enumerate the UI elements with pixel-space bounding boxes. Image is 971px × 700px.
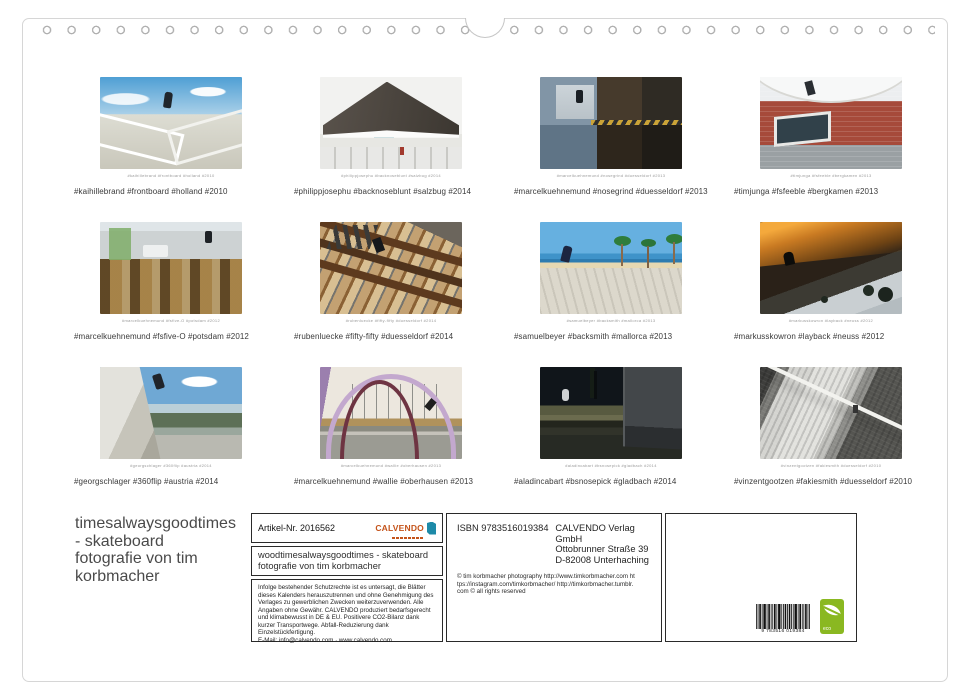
micro-caption: #kaihillebrand #frontboard #holland #201… — [100, 173, 242, 178]
photo-hashtag-caption: #georgschlager #360flip #austria #2014 — [61, 477, 281, 486]
leaf-icon — [823, 601, 841, 619]
photo-hashtag-caption: #timjunga #fsfeeble #bergkamen #2013 — [721, 187, 941, 196]
skater-figure — [853, 405, 858, 413]
calendar-thumb-cell: #kaihillebrand #frontboard #holland #201… — [61, 77, 281, 222]
photo-hashtag-caption: #samuelbeyer #backsmith #mallorca #2013 — [501, 332, 721, 341]
calendar-title-line: fotografie von tim — [75, 550, 236, 568]
publisher-city: D-82008 Unterhaching — [555, 555, 651, 566]
photo-thumbnail — [100, 77, 242, 169]
photo-thumbnail — [540, 367, 682, 459]
calendar-thumb-cell: #rubenluecke #fifty-fifty #duesseldorf #… — [281, 222, 501, 367]
photo-thumbnail — [760, 367, 902, 459]
micro-caption: #rubenluecke #fifty-fifty #duesseldorf #… — [320, 318, 462, 323]
skater-figure — [152, 373, 165, 390]
photo-thumbnail — [760, 77, 902, 169]
photo-hashtag-caption: #markusskowron #layback #neuss #2012 — [721, 332, 941, 341]
calendar-thumb-cell: #marcelkuehnemund #nosegrind #duesseldor… — [501, 77, 721, 222]
micro-caption: #marcelkuehnemund #fsfive-O #potsdam #20… — [100, 318, 242, 323]
eco-badge: eco — [820, 599, 844, 634]
contact-line: E-Mail: info@calvendo.com · www.calvendo… — [258, 637, 392, 644]
photo-thumbnail — [320, 222, 462, 314]
photo-thumbnail — [760, 222, 902, 314]
barcode-digits: 9 783516 019384 — [756, 629, 810, 634]
calendar-thumb-cell: #samuelbeyer #backsmith #mallorca #2013 … — [501, 222, 721, 367]
calendar-thumb-cell: #georgschlager #360flip #austria #2014 #… — [61, 367, 281, 512]
calendar-thumb-cell: #marcelkuehnemund #wallie #oberhausen #2… — [281, 367, 501, 512]
skater-figure — [804, 80, 815, 96]
photo-thumbnail — [540, 77, 682, 169]
isbn-number: ISBN 9783516019384 — [457, 523, 555, 565]
calendar-thumb-cell: #markusskowron #layback #neuss #2012 #ma… — [721, 222, 941, 367]
photo-hashtag-caption: #marcelkuehnemund #wallie #oberhausen #2… — [281, 477, 501, 486]
publisher-address: CALVENDO Verlag GmbH Ottobrunner Straße … — [555, 523, 651, 565]
photo-hashtag-caption: #marcelkuehnemund #nosegrind #duesseldor… — [501, 187, 721, 196]
skater-figure — [205, 231, 212, 243]
photo-thumbnail — [100, 367, 242, 459]
photo-thumbnail — [540, 222, 682, 314]
photo-hashtag-caption: #vinzentgootzen #fakiesmith #duesseldorf… — [721, 477, 941, 486]
calendar-title-line: timesalwaysgoodtimes — [75, 515, 236, 533]
skater-figure — [424, 398, 436, 411]
barcode-bars — [756, 604, 810, 629]
calvendo-wordmark: CALVENDO — [375, 523, 424, 533]
calendar-title-line: korbmacher — [75, 568, 236, 586]
calendar-thumb-cell: #philippjosephu #backnoseblunt #salzbug … — [281, 77, 501, 222]
photo-hashtag-caption: #rubenluecke #fifty-fifty #duesseldorf #… — [281, 332, 501, 341]
eco-label: eco — [823, 626, 831, 632]
micro-caption: #markusskowron #layback #neuss #2012 — [760, 318, 902, 323]
product-title: woodtimesalwaysgoodtimes - skateboard fo… — [258, 550, 428, 571]
calvendo-logo: CALVENDO — [375, 518, 436, 539]
product-title-box: woodtimesalwaysgoodtimes - skateboard fo… — [251, 546, 443, 576]
skater-figure — [783, 251, 795, 266]
micro-caption: #timjunga #fsfeeble #bergkamen #2013 — [760, 173, 902, 178]
micro-caption: #samuelbeyer #backsmith #mallorca #2013 — [540, 318, 682, 323]
calvendo-brush-icon — [427, 522, 436, 535]
calendar-thumb-cell: #marcelkuehnemund #fsfive-O #potsdam #20… — [61, 222, 281, 367]
calendar-sheet: #kaihillebrand #frontboard #holland #201… — [22, 18, 948, 682]
calvendo-tagline-line — [392, 537, 424, 539]
legal-notice: Infolge bestehender Schutzrechte ist es … — [258, 584, 433, 636]
micro-caption: #vinzentgootzen #fakiesmith #duesseldorf… — [760, 463, 902, 468]
photo-grid: #kaihillebrand #frontboard #holland #201… — [61, 77, 941, 512]
article-number-box: Artikel-Nr. 2016562 CALVENDO — [251, 513, 443, 543]
skater-figure — [560, 245, 573, 263]
ean-barcode: 9 783516 019384 — [756, 604, 810, 634]
skater-figure — [163, 92, 173, 109]
calvendo-wordmark-wrap: CALVENDO — [375, 518, 424, 539]
skater-figure — [372, 237, 385, 253]
calendar-back-page: #kaihillebrand #frontboard #holland #201… — [0, 0, 971, 700]
skater-figure — [400, 147, 404, 155]
micro-caption: #aladincabart #bsnosepick #gladbach #201… — [540, 463, 682, 468]
micro-caption: #philippjosephu #backnoseblunt #salzbug … — [320, 173, 462, 178]
calendar-title-line: - skateboard — [75, 533, 236, 551]
photo-thumbnail — [100, 222, 242, 314]
skater-figure — [576, 90, 583, 103]
article-number: Artikel-Nr. 2016562 — [258, 523, 335, 533]
barcode-box: 9 783516 019384 eco — [665, 513, 857, 642]
legal-notice-box: Infolge bestehender Schutzrechte ist es … — [251, 579, 443, 642]
photo-thumbnail — [320, 367, 462, 459]
publisher-street: Ottobrunner Straße 39 — [555, 544, 651, 555]
photo-thumbnail — [320, 77, 462, 169]
calendar-thumb-cell: #aladincabart #bsnosepick #gladbach #201… — [501, 367, 721, 512]
photo-hashtag-caption: #kaihillebrand #frontboard #holland #201… — [61, 187, 281, 196]
photo-hashtag-caption: #philippjosephu #backnoseblunt #salzbug … — [281, 187, 501, 196]
photo-hashtag-caption: #aladincabart #bsnosepick #gladbach #201… — [501, 477, 721, 486]
photo-hashtag-caption: #marcelkuehnemund #fsfive-O #potsdam #20… — [61, 332, 281, 341]
micro-caption: #marcelkuehnemund #wallie #oberhausen #2… — [320, 463, 462, 468]
micro-caption: #marcelkuehnemund #nosegrind #duesseldor… — [540, 173, 682, 178]
skater-figure — [562, 389, 569, 401]
calendar-thumb-cell: #vinzentgootzen #fakiesmith #duesseldorf… — [721, 367, 941, 512]
publisher-name: CALVENDO Verlag GmbH — [555, 523, 651, 544]
calendar-title: timesalwaysgoodtimes - skateboard fotogr… — [75, 515, 236, 585]
calendar-thumb-cell: #timjunga #fsfeeble #bergkamen #2013 #ti… — [721, 77, 941, 222]
micro-caption: #georgschlager #360flip #austria #2014 — [100, 463, 242, 468]
isbn-publisher-row: ISBN 9783516019384 CALVENDO Verlag GmbH … — [457, 523, 651, 565]
photographer-credits: © tim korbmacher photography http://www.… — [457, 573, 651, 596]
isbn-publisher-box: ISBN 9783516019384 CALVENDO Verlag GmbH … — [446, 513, 662, 642]
